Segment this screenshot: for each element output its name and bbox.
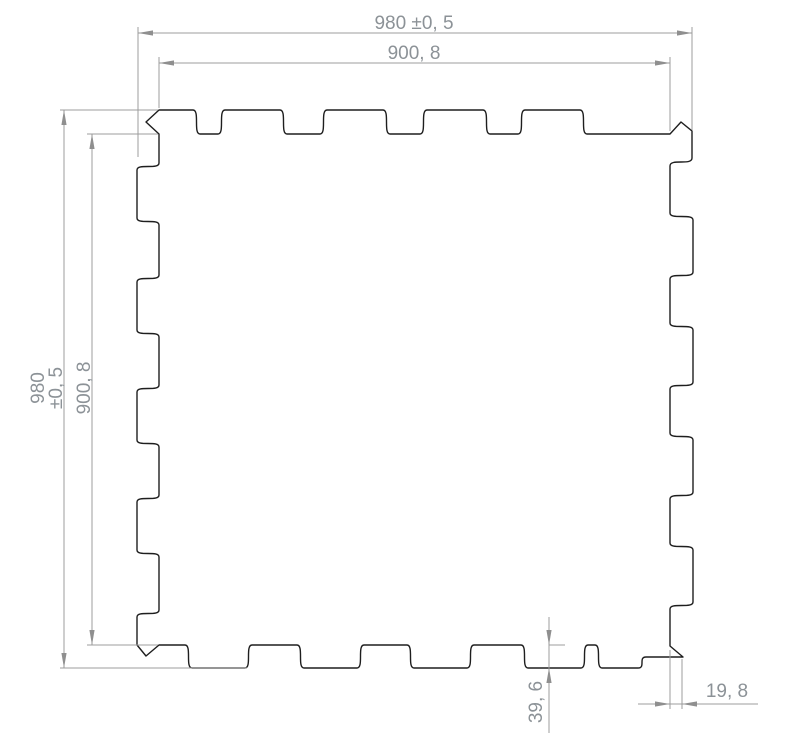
dim-label-left-inner-0: 900, 8 bbox=[74, 362, 95, 415]
dim-arrow-tab-depth-0 bbox=[546, 630, 551, 645]
dimension-left-inner: 900, 8 bbox=[74, 134, 158, 645]
drawing-sheet: 980 ±0, 5900, 8980±0, 5900, 839, 619, 8 bbox=[0, 0, 798, 754]
dimension-tab-depth: 39, 6 bbox=[526, 617, 565, 733]
dim-arrow-tab-depth-1 bbox=[546, 668, 551, 683]
tile-outline-path bbox=[137, 110, 693, 668]
dim-label-tab-depth-0: 39, 6 bbox=[526, 681, 547, 723]
dim-arrow-corner-width-0 bbox=[655, 701, 670, 706]
dim-label-top-inner-0: 900, 8 bbox=[388, 43, 441, 64]
dim-arrow-top-inner-0 bbox=[159, 60, 174, 65]
dimension-top-inner: 900, 8 bbox=[159, 43, 670, 131]
dim-arrow-top-overall-0 bbox=[138, 30, 153, 35]
dim-label-top-overall-0: 980 ±0, 5 bbox=[374, 13, 453, 34]
dim-arrow-corner-width-1 bbox=[682, 701, 697, 706]
dimension-top-overall: 980 ±0, 5 bbox=[138, 13, 692, 157]
dim-arrow-left-overall-0 bbox=[61, 110, 66, 125]
dimension-corner-width: 19, 8 bbox=[638, 650, 758, 709]
dim-label-corner-width-0: 19, 8 bbox=[706, 681, 748, 702]
dim-arrow-top-inner-1 bbox=[655, 60, 670, 65]
dim-arrow-left-inner-1 bbox=[89, 630, 94, 645]
dim-arrow-left-overall-1 bbox=[61, 653, 66, 668]
dim-arrow-left-inner-0 bbox=[89, 134, 94, 149]
dim-arrow-top-overall-1 bbox=[677, 30, 692, 35]
dim-label-left-overall-1: ±0, 5 bbox=[46, 367, 67, 409]
tile-outline-layer bbox=[137, 110, 693, 668]
technical-drawing-canvas: 980 ±0, 5900, 8980±0, 5900, 839, 619, 8 bbox=[0, 0, 798, 754]
